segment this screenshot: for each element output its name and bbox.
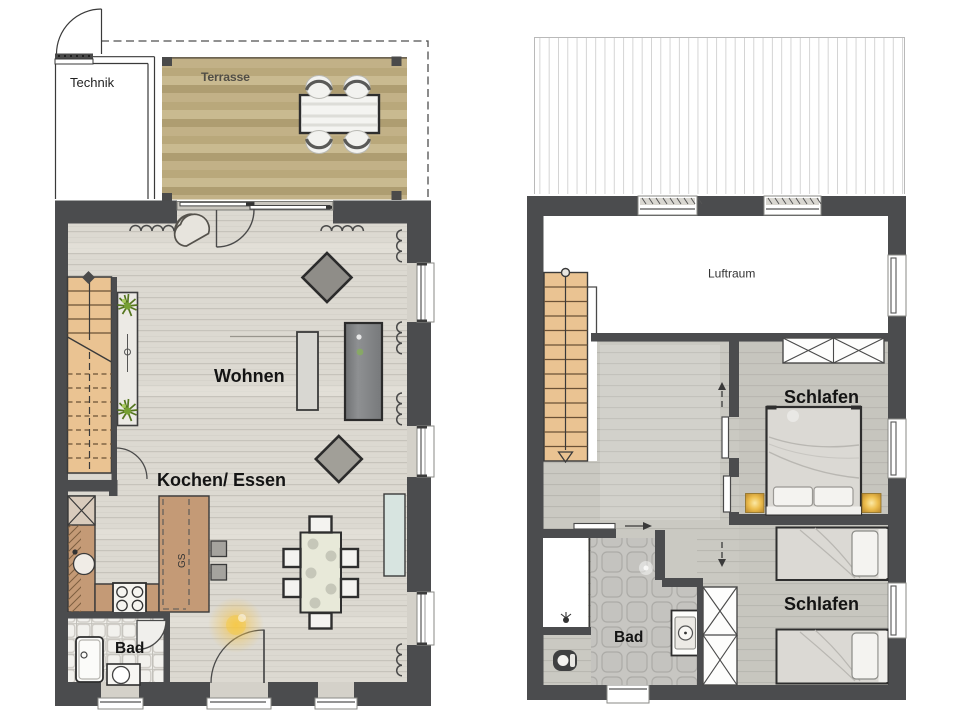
svg-text:Bad: Bad [614, 629, 643, 646]
svg-text:Kochen/ Essen: Kochen/ Essen [157, 470, 286, 490]
svg-text:Schlafen: Schlafen [784, 387, 859, 407]
svg-text:Terrasse: Terrasse [201, 70, 250, 84]
svg-text:Bad: Bad [115, 640, 144, 657]
svg-text:GS: GS [177, 553, 188, 568]
svg-text:Schlafen: Schlafen [784, 594, 859, 614]
svg-text:Luftraum: Luftraum [708, 267, 755, 281]
svg-text:Technik: Technik [70, 75, 115, 90]
svg-text:Wohnen: Wohnen [214, 366, 285, 386]
